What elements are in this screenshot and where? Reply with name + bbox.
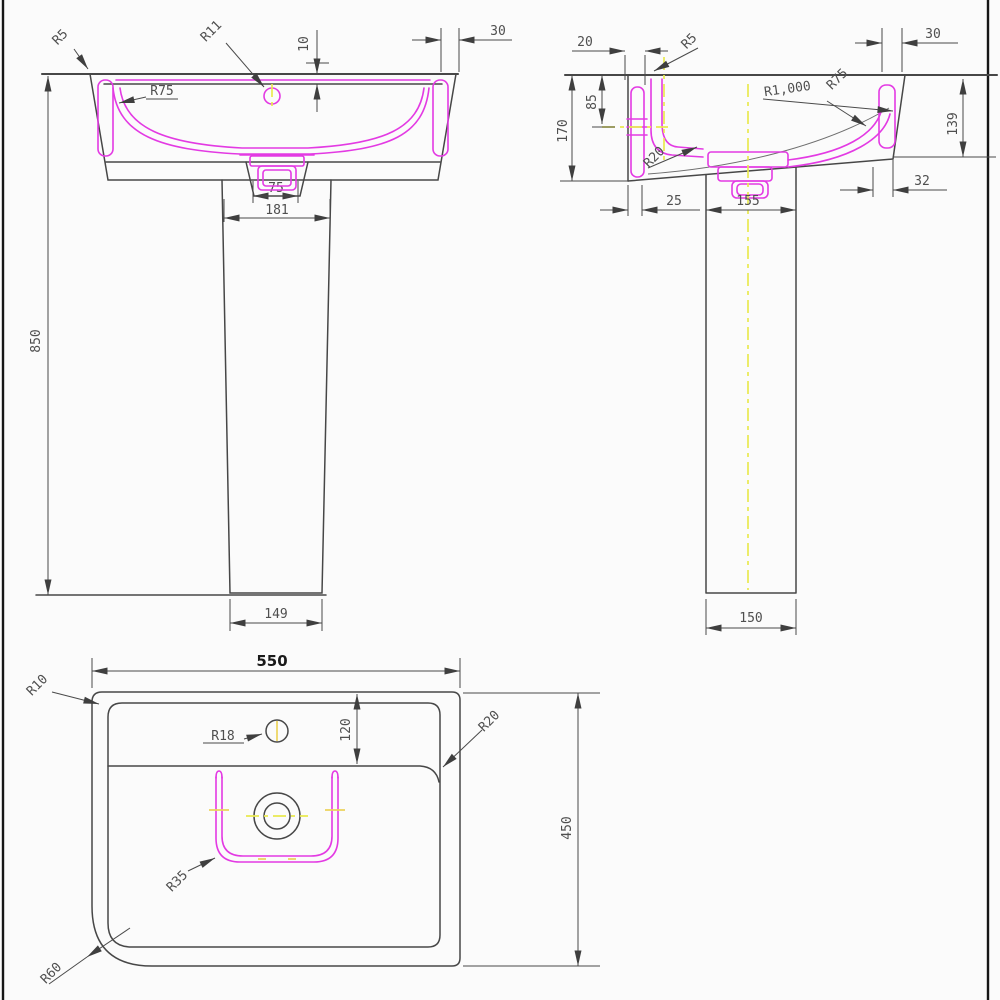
radius-r5f-leader [74, 49, 88, 69]
dim-170-label: 170 [556, 119, 571, 142]
dim-30f-ext [441, 28, 459, 72]
radius-r1000-leader [763, 99, 893, 111]
radius-r5s-label: R5 [679, 31, 701, 53]
plan-u-channel-centermarks [209, 810, 345, 859]
dim-10-label: 10 [297, 36, 312, 52]
radius-r35-leader [188, 858, 215, 871]
dim-25-label: 25 [666, 194, 682, 209]
dim-850-label: 850 [29, 329, 44, 352]
radius-r5f-label: R5 [50, 27, 72, 49]
plan-u-channel-outer [216, 777, 338, 862]
radius-r11-label: R11 [198, 18, 225, 45]
radius-r18-label: R18 [211, 729, 234, 744]
dim-450-label: 450 [560, 816, 575, 839]
radius-r20p-label: R20 [476, 708, 503, 735]
side-front-rim-slot [879, 85, 895, 148]
dim-139-label: 139 [946, 112, 961, 135]
front-drain-flange [250, 156, 304, 166]
radius-r20p-leader [443, 730, 482, 767]
radius-r75s-label: R75 [824, 66, 851, 93]
dim-149-label: 149 [264, 607, 287, 622]
dim-181-label: 181 [265, 203, 288, 218]
radius-r60-label: R60 [38, 960, 65, 987]
plan-u-channel-caps [216, 771, 338, 778]
side-back-slot [631, 87, 644, 177]
front-pedestal [222, 180, 331, 593]
plan-bowl-back-edge [108, 766, 439, 782]
dim-32-label: 32 [914, 174, 930, 189]
dim-155-label: 155 [736, 194, 759, 209]
radius-r75s-leader [827, 101, 866, 126]
front-left-overflow-slot [98, 80, 113, 156]
dim-75-label: 75 [268, 181, 284, 196]
side-underside-line [628, 159, 893, 181]
radius-r10-label: R10 [24, 672, 51, 699]
side-bowl-back-inner [662, 79, 703, 149]
dim-150-label: 150 [739, 611, 762, 626]
plan-view: 550 R10 R18 120 R20 450 R35 R60 [24, 652, 600, 987]
technical-drawing-canvas: 75 850 10 30 181 14 [0, 0, 1000, 1000]
radius-r18-leader [244, 734, 262, 739]
dim-85-label: 85 [585, 94, 600, 110]
dim-32-ext [873, 160, 893, 197]
dim-20-label: 20 [577, 35, 593, 50]
radius-r35-label: R35 [164, 868, 191, 895]
dim-550-label: 550 [256, 652, 287, 670]
dim-30s-ext [882, 28, 902, 72]
radius-r75f-label: R75 [150, 84, 173, 99]
dim-120-label: 120 [339, 718, 354, 741]
side-pedestal [706, 167, 796, 593]
dim-25-ext [628, 185, 642, 216]
front-view: 75 850 10 30 181 14 [29, 18, 512, 631]
dim-30f-label: 30 [490, 24, 506, 39]
dim-450-ticks [463, 693, 600, 966]
side-bowl-front-curve-inner [788, 112, 881, 160]
front-right-overflow-slot [433, 80, 448, 156]
side-bowl-front-curve-outer [788, 114, 890, 167]
dim-30s-label: 30 [925, 27, 941, 42]
radius-r1000-label: R1,000 [763, 79, 812, 100]
plan-inner-rim [108, 703, 440, 947]
basin-drawing-svg: 75 850 10 30 181 14 [0, 0, 1000, 1000]
side-view: 20 R5 30 170 85 R1,000 R75 139 R20 32 [556, 27, 997, 635]
